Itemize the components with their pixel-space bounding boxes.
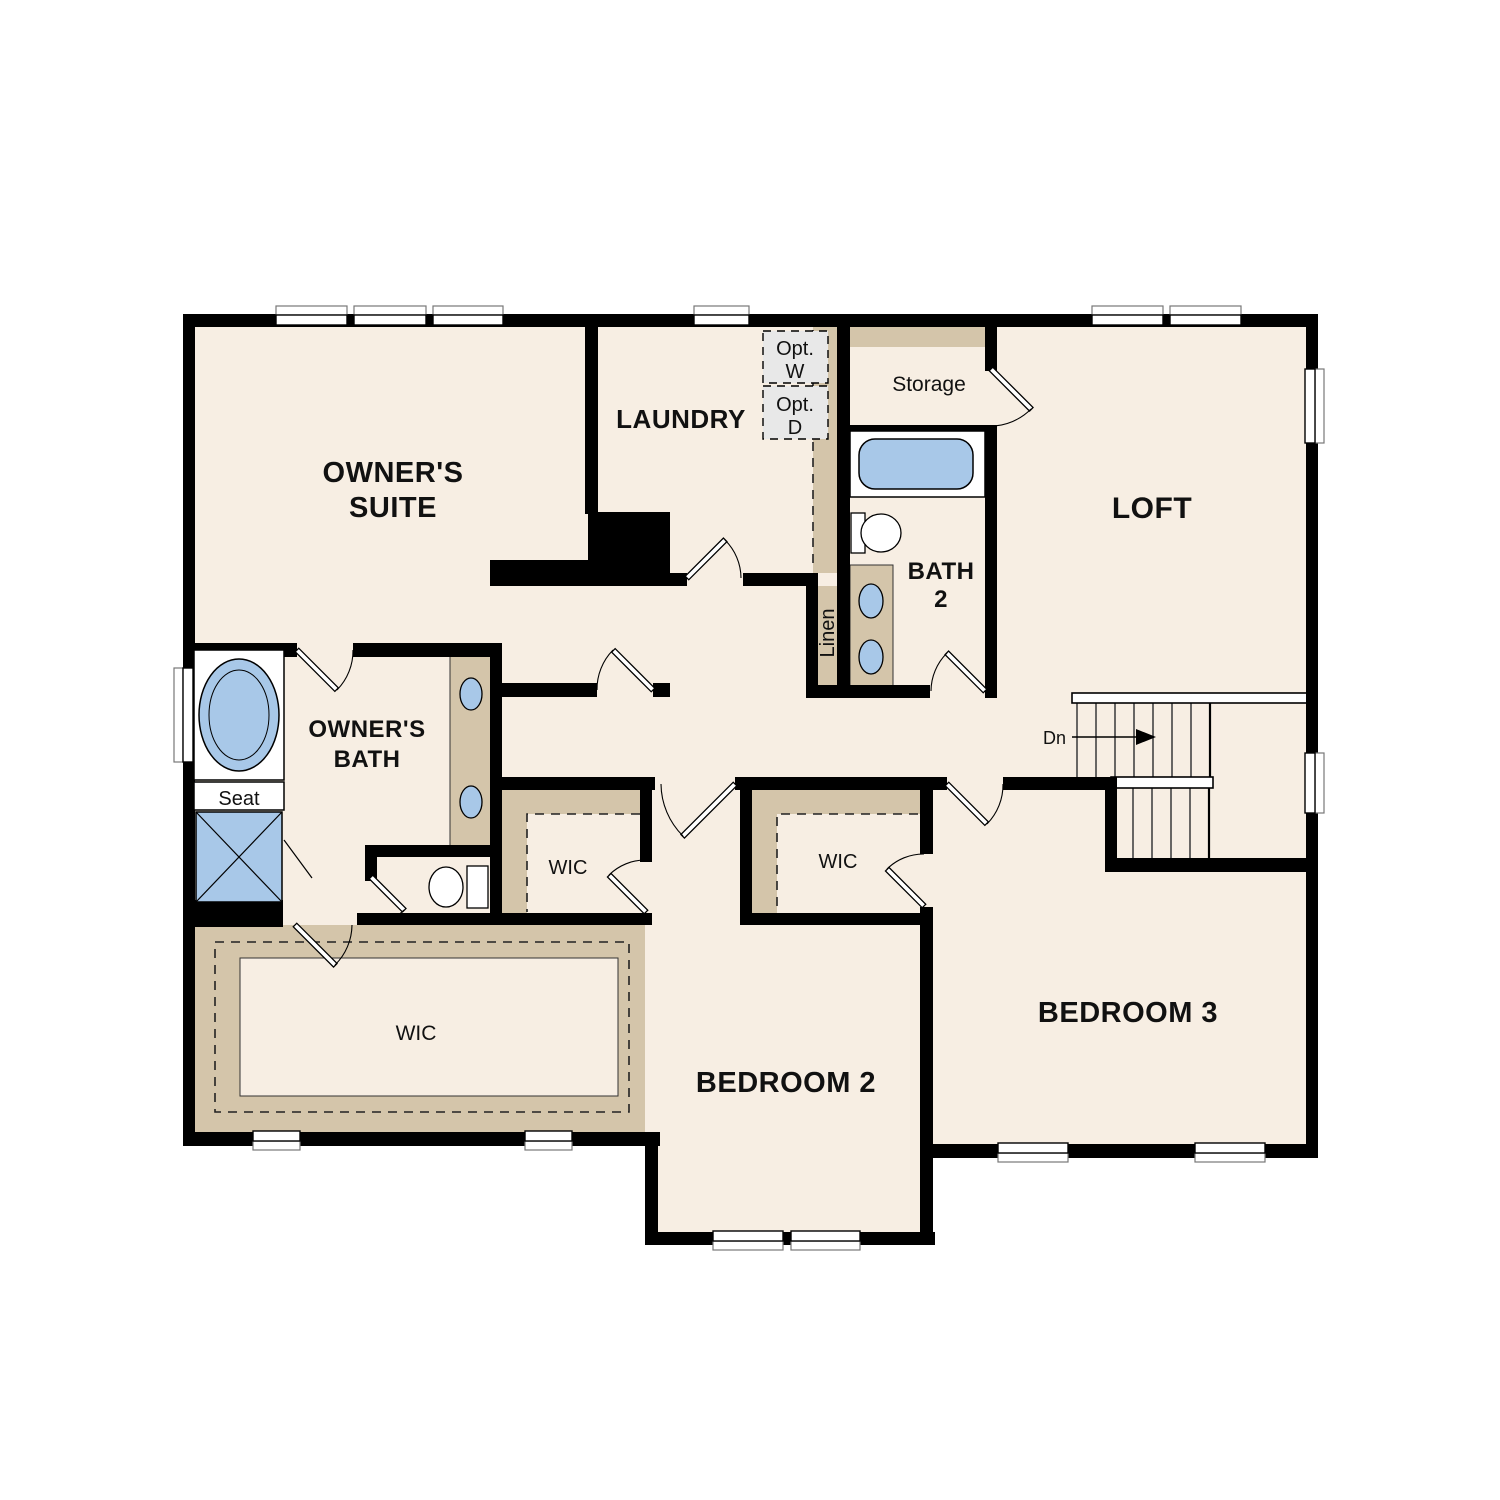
room-label-loft: LOFT xyxy=(1112,492,1192,525)
bath2-tub xyxy=(859,439,973,489)
stair-down-label: Dn xyxy=(1043,728,1066,748)
floor-plan-page: Dn xyxy=(0,0,1500,1500)
closet-label-wic-bedroom3: WIC xyxy=(819,851,858,873)
svg-text:W: W xyxy=(786,361,805,383)
stair-landing-rail xyxy=(1111,777,1213,788)
svg-text:BATH: BATH xyxy=(334,746,401,773)
svg-text:OWNER'S: OWNER'S xyxy=(323,457,464,489)
svg-text:SUITE: SUITE xyxy=(349,492,437,524)
room-label-bedroom2: BEDROOM 2 xyxy=(696,1067,876,1099)
svg-text:2: 2 xyxy=(934,586,948,613)
wic2-shelf-left xyxy=(502,790,527,913)
svg-text:D: D xyxy=(788,417,802,439)
owner-tub xyxy=(199,659,279,771)
bath2-sink-1 xyxy=(859,584,883,618)
stair-top-rail xyxy=(1072,693,1311,703)
room-label-laundry: LAUNDRY xyxy=(616,404,746,434)
owner-sink-1 xyxy=(460,678,482,710)
svg-text:BATH: BATH xyxy=(908,558,975,585)
closet-label-wic-bedroom2: WIC xyxy=(549,857,588,879)
svg-text:Opt.: Opt. xyxy=(776,338,814,360)
room-label-storage: Storage xyxy=(892,373,966,396)
owner-sink-2 xyxy=(460,786,482,818)
bath2-toilet xyxy=(851,513,901,553)
floor-plan-drawing: Dn xyxy=(0,0,1500,1500)
wic3-shelf-top xyxy=(752,790,920,814)
svg-text:OWNER'S: OWNER'S xyxy=(308,716,425,743)
storage-shelf-band xyxy=(850,327,985,347)
closet-label-owner-wic: WIC xyxy=(396,1022,437,1045)
bath2-sink-2 xyxy=(859,640,883,674)
room-label-bedroom3: BEDROOM 3 xyxy=(1038,997,1218,1029)
fixture-label-seat: Seat xyxy=(218,788,260,810)
svg-text:Opt.: Opt. xyxy=(776,394,814,416)
wic3-shelf-left xyxy=(752,790,777,913)
closet-label-linen: Linen xyxy=(817,609,839,658)
